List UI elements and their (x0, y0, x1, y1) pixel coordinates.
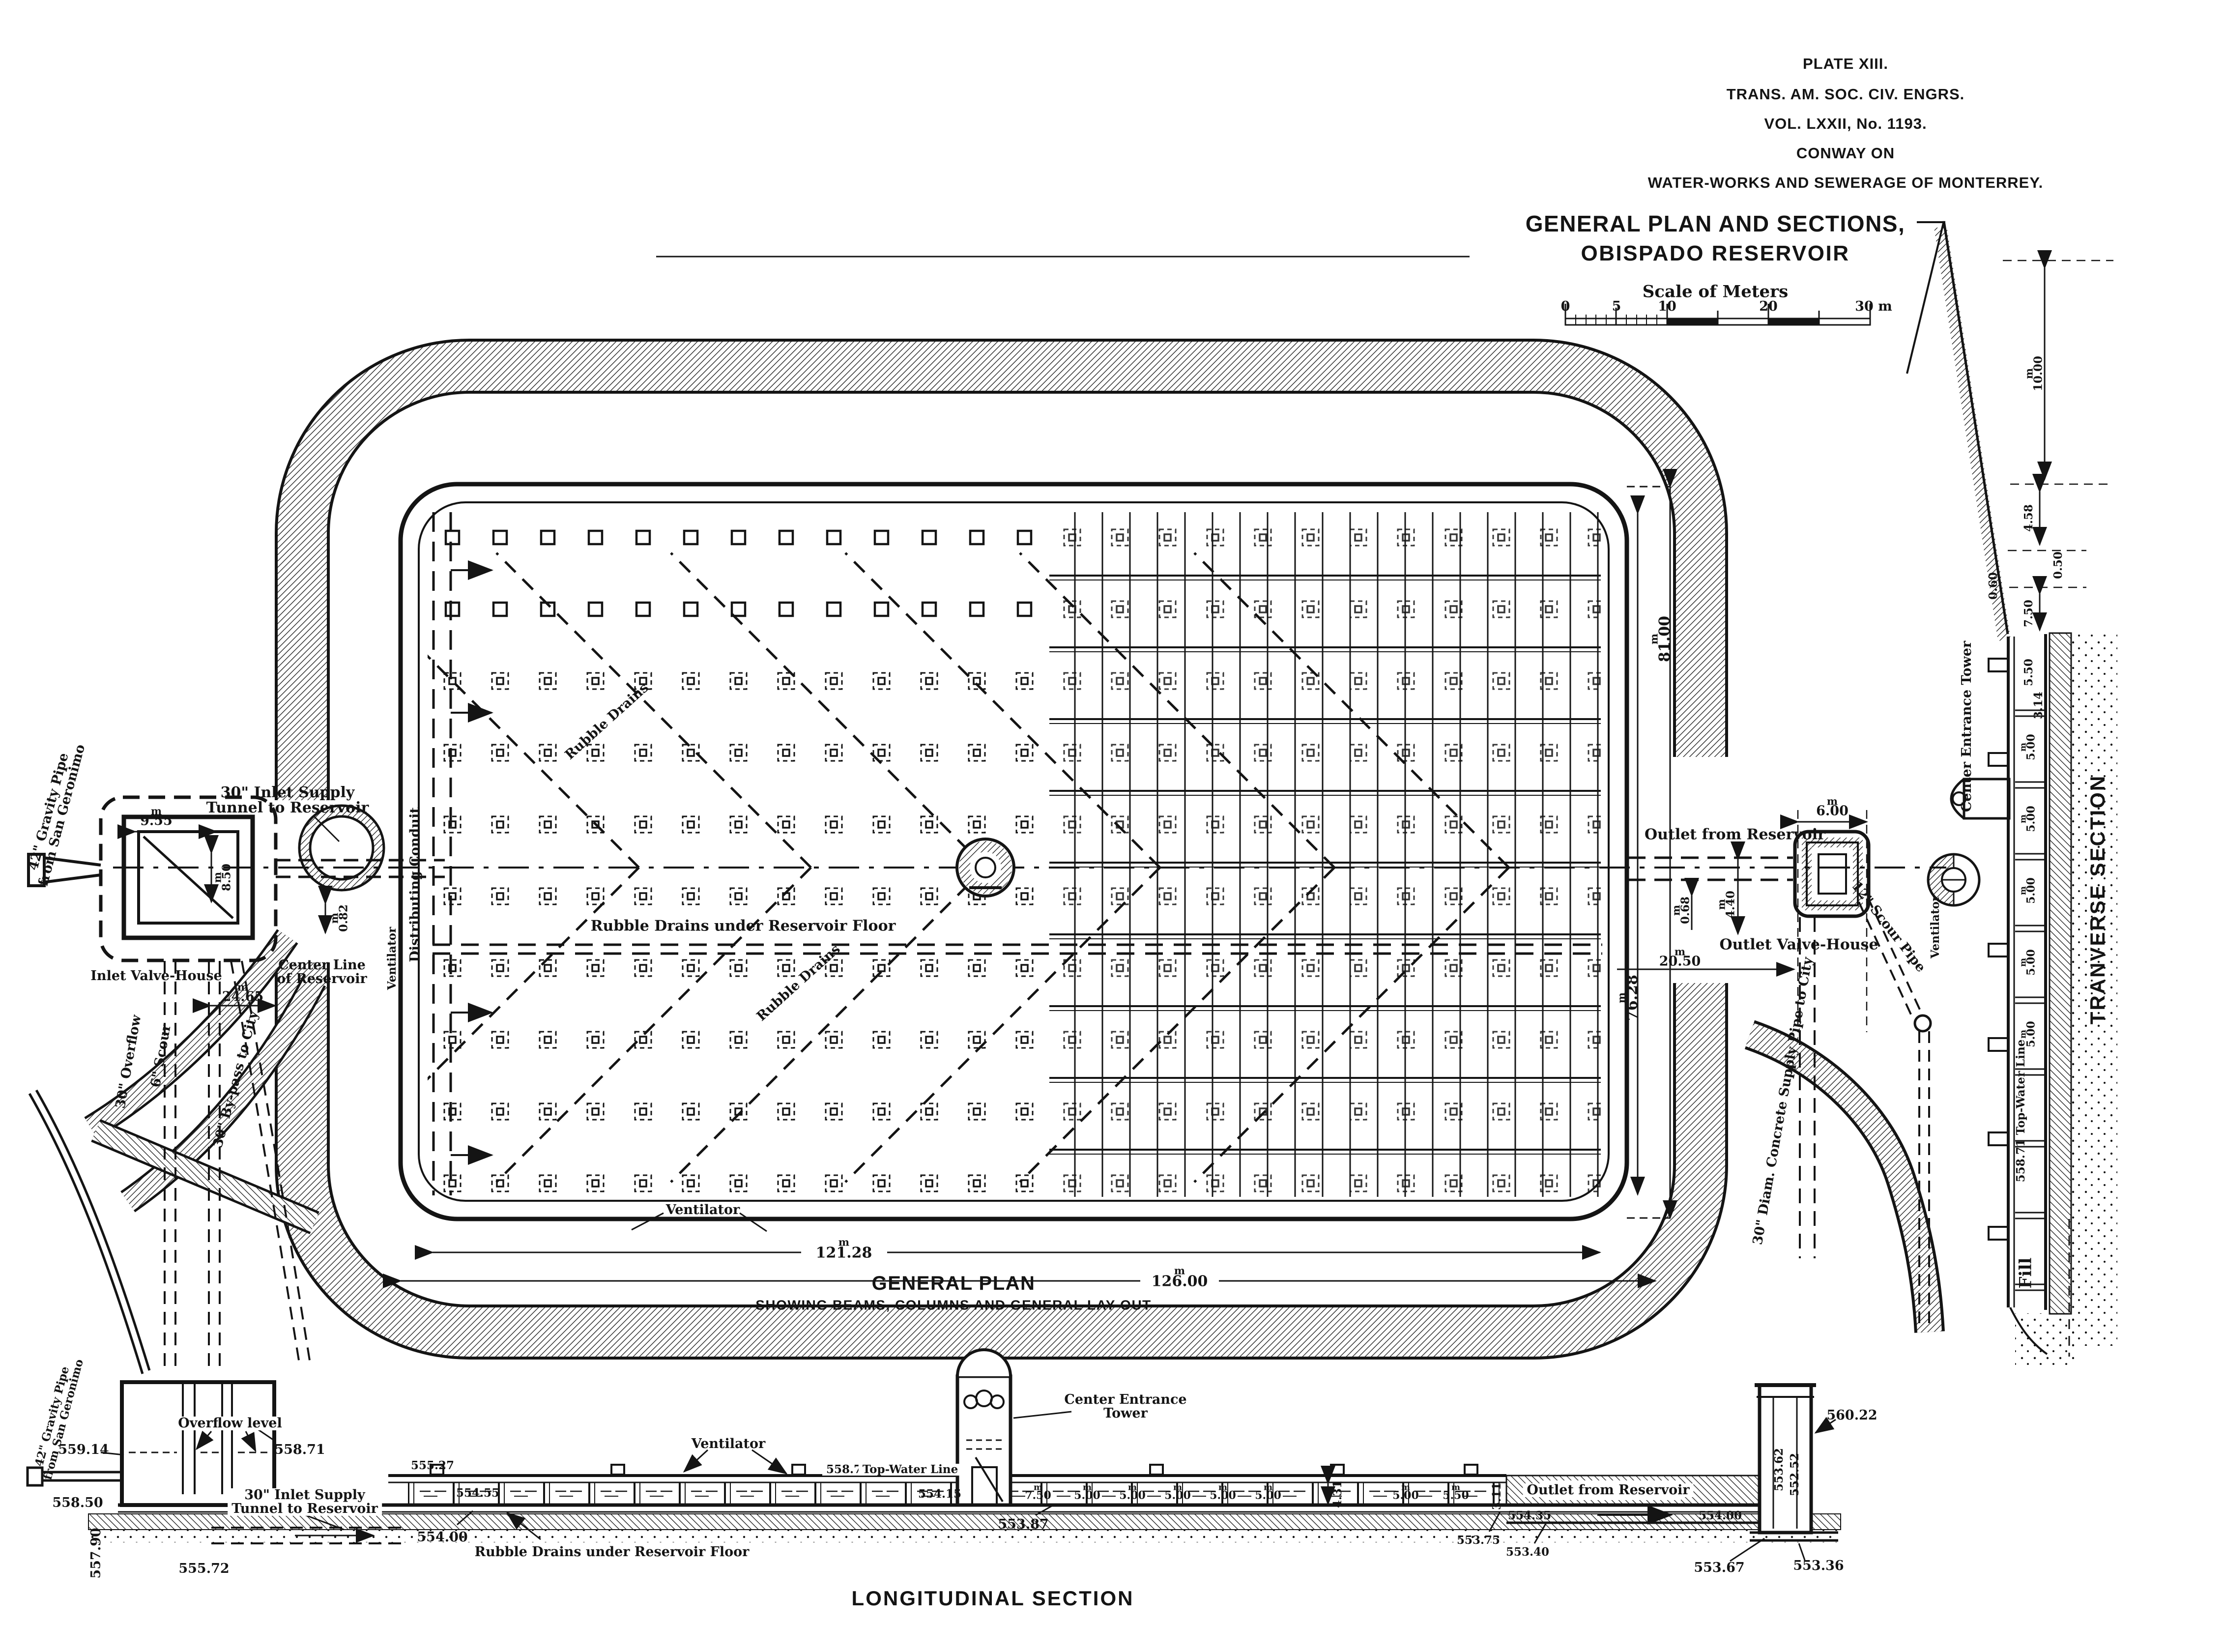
elev-559-14: 559.14 (58, 1443, 109, 1457)
scale-caption: Scale of Meters (1643, 283, 1788, 300)
elev-555-72: 555.72 (178, 1562, 229, 1576)
trans-dim-bank-height: m 10.00 (2024, 356, 2043, 391)
elev-555-27: 555.27 (411, 1460, 454, 1472)
elev-560-22: 560.22 (1826, 1409, 1877, 1422)
trans-dim-slope: 7.50 (2023, 600, 2035, 627)
long-bay-500-4: m 5.00 (1210, 1484, 1236, 1500)
trans-dim-060: 0.60 (1988, 572, 1999, 600)
scale-tick-5: 5 (1612, 300, 1621, 314)
inlet-supply-plan-line2: Tunnel to Reservoir (206, 800, 369, 815)
dim-outlet-dist: m 20.50 (1659, 948, 1701, 968)
trans-dim-berm: 4.58 (2023, 504, 2035, 532)
long-bay-500-6: m 5.00 (1392, 1484, 1419, 1500)
trans-bay-value: 5.00 (2027, 877, 2036, 904)
long-bay-750-value: 7.50 (1025, 1491, 1051, 1501)
dim-outlet-depth-value: 4.40 (1726, 891, 1735, 918)
trans-bay-value: 5.00 (2027, 1021, 2036, 1047)
trans-bay-500-2: m 5.00 (2020, 806, 2036, 832)
inlet-supply-plan-label: 30" Inlet Supply Tunnel to Reservoir (206, 785, 369, 815)
dim-outlet-depth: m 4.40 (1717, 891, 1735, 918)
trans-dim-bank-height-value: 10.00 (2033, 356, 2043, 391)
dim-width-inner-value: 121.28 (816, 1246, 872, 1259)
elev-553-67: 553.67 (1694, 1561, 1744, 1575)
trans-dim-050: 0.50 (2052, 551, 2064, 579)
center-line-label: Center Line of Reservoir (277, 958, 367, 986)
trans-bay-550: 5.50 (2023, 659, 2035, 686)
long-bay-value: 5.00 (1392, 1491, 1419, 1501)
dim-offset-value: 0.82 (339, 904, 348, 932)
elev-553-36: 553.36 (1793, 1559, 1844, 1573)
trans-bay-value: 5.00 (2027, 734, 2036, 760)
inlet-valve-house-label: Inlet Valve-House (90, 969, 222, 983)
long-bay-500-2: m 5.00 (1119, 1484, 1146, 1500)
dim-valve-width: m 9.55 (140, 807, 173, 827)
trans-bay-value: 5.00 (2027, 806, 2036, 832)
dim-valve-height: m 8.50 (213, 864, 231, 891)
elev-553-62: 553.62 (1773, 1448, 1785, 1491)
dim-to-wall-value: 24.65 (222, 991, 264, 1003)
long-bay-500-1: m 5.00 (1074, 1484, 1100, 1500)
drawing-sheet: PLATE XIII. TRANS. AM. SOC. CIV. ENGRS. … (0, 0, 2224, 1652)
ventilator-left-label: Ventilator (386, 927, 398, 990)
dim-len-inner: m 76.28 (1617, 975, 1638, 1021)
long-bay-value: 5.00 (1164, 1491, 1191, 1501)
ventilator-right-label: Ventilator (1930, 896, 1941, 958)
dim-outlet-width-value: 6.00 (1816, 806, 1849, 817)
inlet-supply-long-line1: 30" Inlet Supply (231, 1488, 378, 1502)
trans-bay-500-3: m 5.00 (2020, 877, 2036, 904)
outlet-from-reservoir-plan-label: Outlet from Reservoir (1645, 827, 1825, 842)
dim-outlet-width: m 6.00 (1816, 797, 1849, 817)
elev-554-15: 554.15 (918, 1488, 961, 1500)
author-line: CONWAY ON (1796, 145, 1895, 161)
trans-bay-value: 5.00 (2027, 949, 2036, 976)
plate-number: PLATE XIII. (1803, 56, 1888, 72)
trans-bay-314: 3.14 (2033, 692, 2045, 719)
distributing-conduit-label: Distributing Conduit (408, 807, 422, 962)
top-water-line-long-label: Top-Water Line (859, 1464, 962, 1476)
elev-554-00b: 554.00 (1699, 1510, 1742, 1522)
dim-len-outer-value: 81.00 (1658, 616, 1671, 662)
long-bay-height-431: 4.31 (1332, 1480, 1344, 1508)
outlet-long-label: Outlet from Reservoir (1523, 1483, 1693, 1497)
inlet-supply-plan-line1: 30" Inlet Supply (206, 785, 369, 800)
long-bay-500-5: m 5.00 (1255, 1484, 1281, 1500)
dim-len-inner-value: 76.28 (1626, 975, 1639, 1021)
volume-number: VOL. LXXII, No. 1193. (1764, 116, 1927, 132)
long-bay-550: m 5.50 (1443, 1484, 1469, 1500)
elev-553-87: 553.87 (998, 1518, 1048, 1532)
sheet-title-line1: GENERAL PLAN AND SECTIONS, (1526, 212, 1906, 236)
transverse-section-caption: TRANVERSE SECTION (2087, 775, 2108, 1024)
long-bay-311: 3.11 (1491, 1482, 1503, 1510)
dim-width-outer: m 126.00 (1152, 1266, 1208, 1287)
dim-len-outer: m 81.00 (1649, 616, 1671, 662)
dim-width-outer-value: 126.00 (1152, 1275, 1208, 1288)
long-bay-500-3: m 5.00 (1164, 1484, 1191, 1500)
sheet-title-line2: OBISPADO RESERVOIR (1581, 242, 1849, 265)
plan-bottom-dims (401, 1213, 1655, 1281)
rubble-drains-floor-label: Rubble Drains under Reservoir Floor (591, 918, 896, 933)
elev-552-52: 552.52 (1789, 1453, 1801, 1496)
overflow-level-label: Overflow level (174, 1417, 286, 1430)
trans-top-water-label: 558.71 Top-Water Line (2015, 1040, 2027, 1183)
scale-tick-20: 20 (1759, 300, 1778, 314)
dim-outlet-offset: m 0.68 (1672, 897, 1690, 924)
center-entrance-tower-right-label: Center Entrance Tower (1960, 641, 1974, 812)
center-tower-long-line2: Tower (1064, 1407, 1186, 1420)
elev-557-90: 557.90 (89, 1528, 103, 1578)
long-bay-750: m 7.50 (1025, 1484, 1051, 1500)
outlet-valve-house-label: Outlet Valve-House (1719, 937, 1878, 952)
dim-valve-height-value: 8.50 (222, 864, 231, 891)
center-tower-long-line1: Center Entrance (1064, 1393, 1186, 1407)
ventilator-long-label: Ventilator (692, 1437, 765, 1451)
elev-558-50: 558.50 (52, 1496, 103, 1510)
dim-outlet-offset-value: 0.68 (1680, 897, 1690, 924)
elev-553-40: 553.40 (1506, 1546, 1549, 1558)
center-line-line2: of Reservoir (277, 972, 367, 986)
dim-width-inner: m 121.28 (816, 1238, 872, 1259)
inlet-supply-long-line2: Tunnel to Reservoir (231, 1502, 378, 1516)
long-bay-550-value: 5.50 (1443, 1491, 1469, 1501)
inlet-supply-long-label: 30" Inlet Supply Tunnel to Reservoir (228, 1488, 382, 1516)
center-line-line1: Center Line (277, 958, 367, 972)
elev-554-35: 554.35 (1508, 1510, 1551, 1522)
general-plan-subcaption: SHOWING BEAMS, COLUMNS AND GENERAL LAY-O… (755, 1298, 1152, 1312)
work-title: WATER-WORKS AND SEWERAGE OF MONTERREY. (1648, 175, 2043, 191)
trans-bay-500-4: m 5.00 (2020, 949, 2036, 976)
center-tower-long-label: Center Entrance Tower (1064, 1393, 1186, 1420)
scale-tick-0: 0 (1561, 300, 1570, 314)
long-bay-value: 5.00 (1210, 1491, 1236, 1501)
dim-valve-width-value: 9.55 (140, 815, 173, 827)
scale-tick-30: 30 m (1855, 300, 1892, 314)
elev-554-00: 554.00 (417, 1531, 467, 1544)
fill-label: Fill (2017, 1258, 2034, 1289)
dim-to-wall: m 24.65 (222, 983, 264, 1003)
long-bay-value: 5.00 (1074, 1491, 1100, 1501)
long-bay-value: 5.00 (1255, 1491, 1281, 1501)
dim-offset: m 0.82 (330, 904, 348, 932)
rubble-long-label: Rubble Drains under Reservoir Floor (475, 1545, 750, 1559)
society-name: TRANS. AM. SOC. CIV. ENGRS. (1727, 87, 1965, 102)
trans-bay-500-1: m 5.00 (2020, 734, 2036, 760)
dim-outlet-dist-value: 20.50 (1659, 956, 1701, 967)
ventilator-bottom-label: Ventilator (666, 1203, 740, 1217)
elev-558-71: 558.71 (274, 1443, 325, 1457)
scale-tick-10: 10 (1658, 300, 1676, 314)
general-plan-caption: GENERAL PLAN (872, 1274, 1036, 1294)
elev-554-55: 554.55 (456, 1487, 499, 1499)
long-bay-value: 5.00 (1119, 1491, 1146, 1501)
elev-553-75: 553.75 (1457, 1535, 1500, 1546)
longitudinal-section-caption: LONGITUDINAL SECTION (852, 1588, 1134, 1609)
